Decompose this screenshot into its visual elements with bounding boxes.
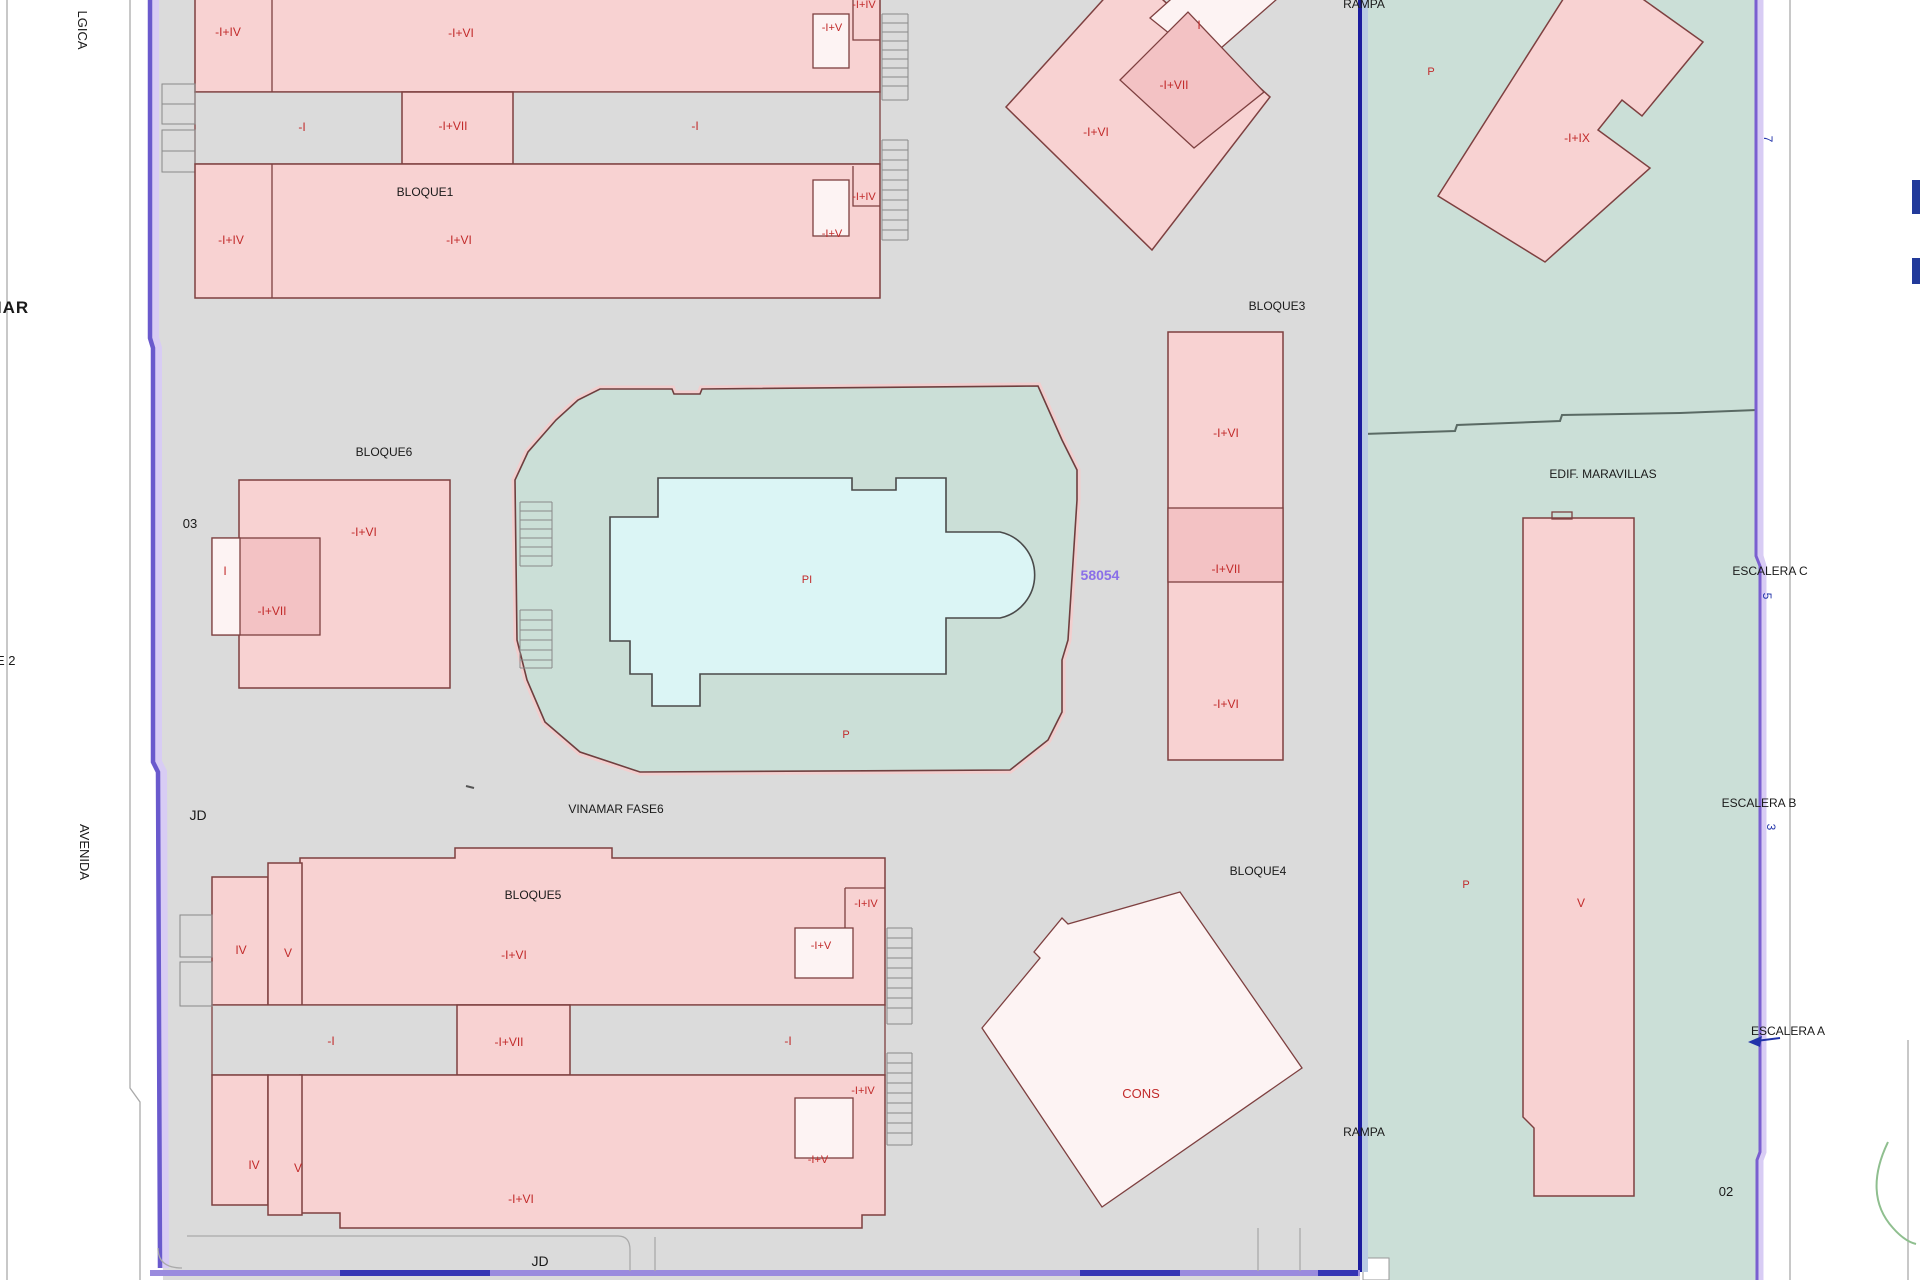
bloque4-title: BLOQUE4 xyxy=(1230,864,1287,878)
bloque1-label-bottom-left: -I+IV xyxy=(218,233,244,247)
green-park-label-lower: P xyxy=(1462,879,1469,891)
street-label-belgica: LGICA xyxy=(75,10,90,49)
bloque5-label-strip-mid: -I+VII xyxy=(494,1035,523,1049)
maravillas-tower-label: V xyxy=(1577,896,1585,910)
clipped-text-fragment-1 xyxy=(1912,180,1920,214)
maravillas-title: EDIF. MARAVILLAS xyxy=(1549,467,1656,481)
bloque5-label-br-outer: -I+IV xyxy=(851,1085,875,1097)
bloque6-building xyxy=(212,480,450,688)
bloque5-label-strip-right: -I xyxy=(784,1034,791,1048)
bloque5-label-top-v: V xyxy=(284,946,292,960)
diamond-label-core: -I+VII xyxy=(1159,78,1188,92)
bloque5-nw-cell-iv xyxy=(212,877,268,1005)
bloque5-label-bottom-main: -I+VI xyxy=(508,1192,534,1206)
maravillas-tower xyxy=(1523,512,1634,1196)
bloque1-buildings xyxy=(162,0,908,298)
bloque1-label-br-inner: -I+V xyxy=(822,228,843,240)
bloque5-label-tr-outer: -I+IV xyxy=(854,898,878,910)
label-escalera-c: ESCALERA C xyxy=(1732,564,1808,578)
bloque1-south-wing xyxy=(195,164,880,298)
bloque1-label-strip-left: -I xyxy=(298,120,305,134)
maravillas-label-ix: -I+IX xyxy=(1564,131,1590,145)
label-vinamar-fase6: VINAMAR FASE6 xyxy=(568,802,664,816)
cadastral-map-viewport: LGICA VINAMAR QUE 2 AVENIDA JD JD 03 02 … xyxy=(0,0,1920,1280)
bloque3-label-bottom: -I+VI xyxy=(1213,697,1239,711)
bloque5-nw-cell-v xyxy=(268,863,302,1005)
clipped-text-fragment-2 xyxy=(1912,258,1920,284)
bloque5-sw-cell-v xyxy=(268,1075,302,1215)
label-jd-south: JD xyxy=(531,1253,548,1269)
street-label-bloque2: QUE 2 xyxy=(0,653,16,668)
bloque5-label-bottom-iv: IV xyxy=(248,1158,259,1172)
bloque1-label-top-main: -I+VI xyxy=(448,26,474,40)
bloque3-title: BLOQUE3 xyxy=(1249,299,1306,313)
cadastral-map: LGICA VINAMAR QUE 2 AVENIDA JD JD 03 02 … xyxy=(0,0,1920,1280)
bloque5-label-bottom-v: V xyxy=(294,1161,302,1175)
bloque1-label-strip-mid: -I+VII xyxy=(438,119,467,133)
bloque5-label-top-main: -I+VI xyxy=(501,948,527,962)
bloque3-building xyxy=(1168,332,1283,760)
bloque1-label-tr-inner: -I+V xyxy=(822,22,843,34)
bloque5-label-strip-left: -I xyxy=(327,1034,334,1048)
bloque5-buildings xyxy=(180,848,912,1228)
bloque6-label-main: -I+VI xyxy=(351,525,377,539)
bloque1-label-tr-outer: -I+IV xyxy=(852,0,876,11)
label-rampa-bottom: RAMPA xyxy=(1343,1125,1385,1139)
diamond-label-band: I xyxy=(1197,18,1200,32)
bloque6-title: BLOQUE6 xyxy=(356,445,413,459)
label-escalera-b: ESCALERA B xyxy=(1722,796,1797,810)
bloque6-label-west: I xyxy=(223,564,226,578)
bloque1-label-bottom-main: -I+VI xyxy=(446,233,472,247)
label-escalera-a: ESCALERA A xyxy=(1751,1024,1825,1038)
maravillas-tower-outline xyxy=(1523,518,1634,1196)
bloque5-label-tr-inner: -I+V xyxy=(811,940,832,952)
pool-deck-label: P xyxy=(842,729,849,741)
bloque6-west-strip xyxy=(212,538,240,635)
pool-zone xyxy=(515,386,1077,772)
diamond-label-main: -I+VI xyxy=(1083,125,1109,139)
bloque5-south-staircell xyxy=(795,1098,853,1158)
street-label-vinamar: VINAMAR xyxy=(0,298,29,317)
label-jd-west: JD xyxy=(189,807,206,823)
bloque5-north-wing xyxy=(300,848,885,1005)
label-plot-03: 03 xyxy=(183,516,197,531)
label-plot-02: 02 xyxy=(1719,1184,1733,1199)
bloque3-label-top: -I+VI xyxy=(1213,426,1239,440)
green-park-label-upper: P xyxy=(1427,66,1434,78)
bloque5-north-staircell xyxy=(795,928,853,978)
bloque1-north-wing xyxy=(195,0,880,92)
cons-label: CONS xyxy=(1122,1086,1160,1101)
bloque1-label-strip-right: -I xyxy=(691,119,698,133)
bloque5-label-br-inner: -I+V xyxy=(808,1154,829,1166)
bloque5-sw-cell-iv xyxy=(212,1075,268,1205)
bloque1-label-top-left: -I+IV xyxy=(215,25,241,39)
street-label-avenida: AVENIDA xyxy=(77,824,92,880)
bloque6-label-core: -I+VII xyxy=(257,604,286,618)
bloque5-label-top-iv: IV xyxy=(235,943,246,957)
portal-number-7: 7 xyxy=(1761,136,1775,143)
portal-number-5: 5 xyxy=(1760,593,1774,600)
portal-number-3: 3 xyxy=(1764,824,1778,831)
bloque5-title: BLOQUE5 xyxy=(505,888,562,902)
pool-label: PI xyxy=(802,574,812,586)
bloque1-label-br-outer: -I+IV xyxy=(852,191,876,203)
bloque1-title: BLOQUE1 xyxy=(397,185,454,199)
bloque3-label-mid: -I+VII xyxy=(1211,562,1240,576)
label-rampa-top: RAMPA xyxy=(1343,0,1385,11)
label-parcel-number: 58054 xyxy=(1081,567,1120,583)
